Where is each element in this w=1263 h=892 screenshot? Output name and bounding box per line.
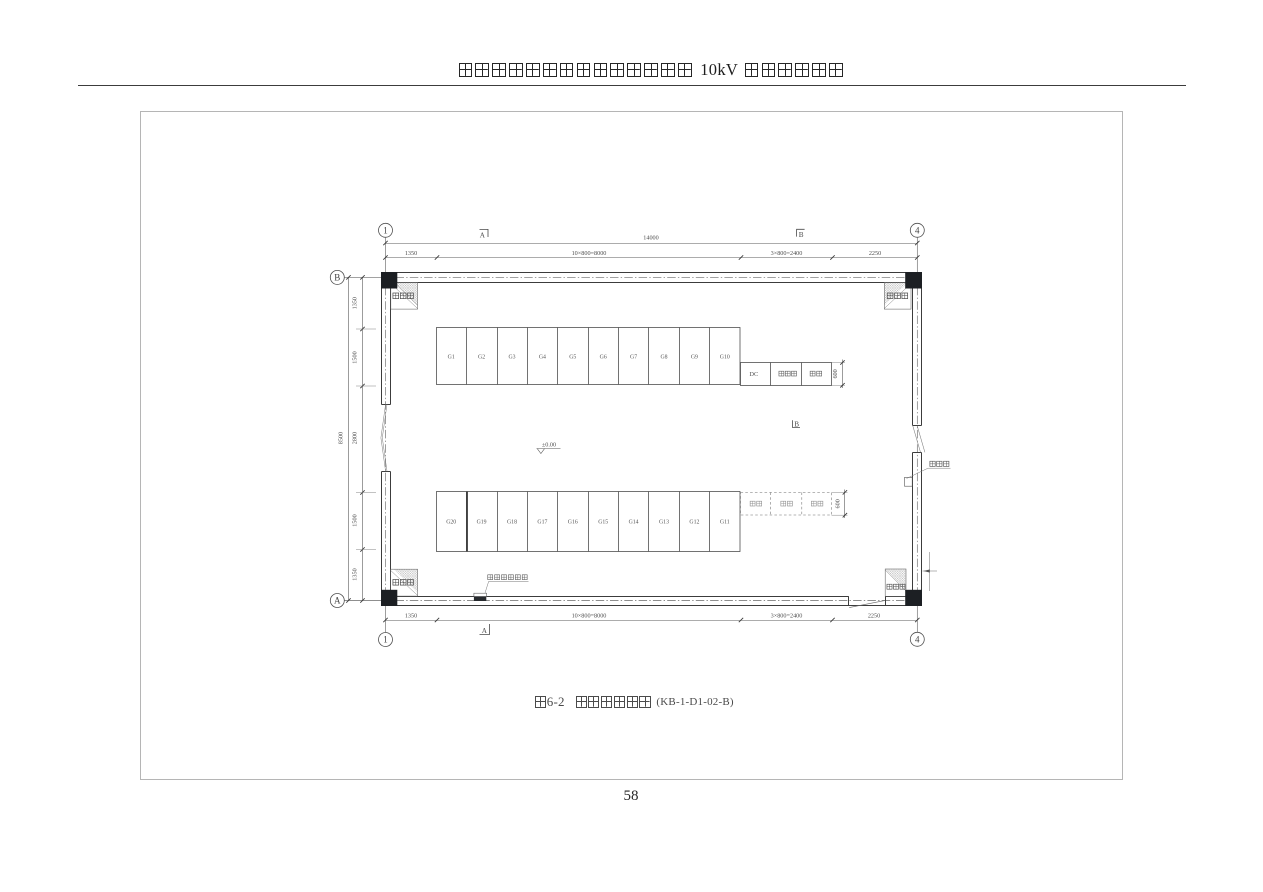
svg-text:3×800=2400: 3×800=2400 — [771, 612, 803, 619]
svg-text:2250: 2250 — [869, 250, 881, 257]
svg-text:4: 4 — [915, 225, 920, 235]
svg-text:G12: G12 — [689, 519, 699, 525]
svg-text:1350: 1350 — [351, 297, 358, 309]
svg-text:G6: G6 — [600, 355, 607, 361]
svg-text:G3: G3 — [508, 355, 515, 361]
svg-text:B: B — [334, 273, 340, 283]
svg-text:G9: G9 — [691, 355, 698, 361]
svg-text:G5: G5 — [569, 355, 576, 361]
svg-text:8500: 8500 — [337, 432, 344, 444]
svg-text:G20: G20 — [446, 519, 456, 525]
svg-text:A: A — [334, 596, 341, 606]
svg-text:G13: G13 — [659, 519, 669, 525]
svg-text:1500: 1500 — [351, 514, 358, 526]
svg-text:G8: G8 — [660, 355, 667, 361]
svg-text:B: B — [794, 421, 799, 429]
svg-text:1350: 1350 — [405, 250, 417, 257]
svg-text:1500: 1500 — [351, 351, 358, 363]
svg-text:600: 600 — [832, 369, 839, 378]
svg-text:1350: 1350 — [405, 612, 417, 619]
svg-text:2250: 2250 — [868, 612, 880, 619]
svg-text:600: 600 — [835, 499, 842, 508]
svg-text:G15: G15 — [598, 519, 608, 525]
svg-text:G18: G18 — [507, 519, 517, 525]
svg-text:2800: 2800 — [351, 432, 358, 444]
svg-text:G4: G4 — [539, 355, 546, 361]
svg-text:G14: G14 — [629, 519, 639, 525]
svg-text:G16: G16 — [568, 519, 578, 525]
svg-text:1350: 1350 — [351, 568, 358, 580]
svg-text:10×800=8000: 10×800=8000 — [572, 250, 607, 257]
svg-text:G1: G1 — [448, 355, 455, 361]
svg-text:1: 1 — [383, 225, 388, 235]
svg-text:G10: G10 — [720, 355, 730, 361]
svg-text:B: B — [799, 231, 804, 239]
svg-text:A: A — [480, 231, 486, 239]
svg-text:G17: G17 — [537, 519, 547, 525]
svg-text:DC: DC — [749, 371, 758, 378]
svg-text:G7: G7 — [630, 355, 637, 361]
svg-text:14000: 14000 — [643, 235, 658, 242]
svg-text:4: 4 — [915, 634, 920, 644]
svg-text:G2: G2 — [478, 355, 485, 361]
svg-text:G19: G19 — [477, 519, 487, 525]
svg-text:10×800=8000: 10×800=8000 — [572, 612, 607, 619]
svg-text:±0.00: ±0.00 — [542, 442, 556, 449]
svg-text:G11: G11 — [720, 519, 730, 525]
svg-text:A: A — [482, 627, 488, 635]
svg-text:1: 1 — [383, 635, 388, 645]
svg-text:3×800=2400: 3×800=2400 — [771, 250, 803, 257]
